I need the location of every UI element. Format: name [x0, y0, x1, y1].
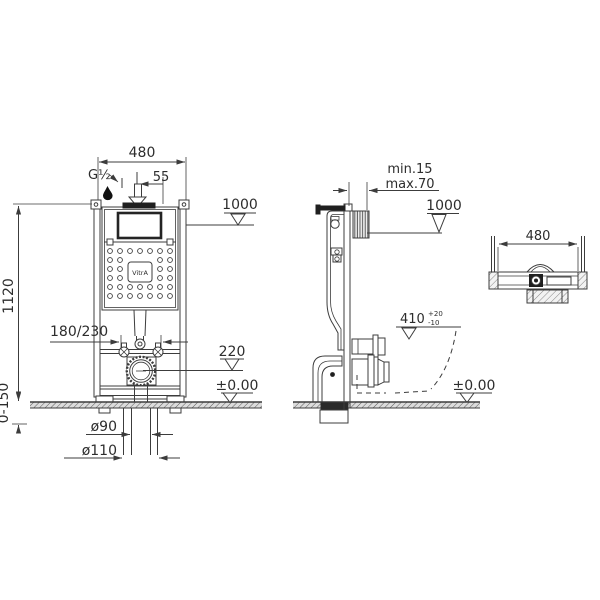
- level-floor-front: ±0.00: [216, 378, 259, 403]
- wall-distance-min-label: min.15: [387, 162, 432, 177]
- frame-height-label: 1120: [1, 278, 17, 314]
- level-triangle-icon: [231, 214, 245, 225]
- brand-label: VitrA: [132, 269, 148, 277]
- rim-tolerance-plus-label: +20: [428, 310, 443, 318]
- flush-level-label-side: 1000: [426, 198, 462, 214]
- front-view: 480 G½ 55: [0, 145, 262, 459]
- dim-bolt-spacing: 180/230: [50, 324, 188, 349]
- cistern-section: [527, 290, 568, 303]
- wall-section: [353, 211, 369, 238]
- corner-bracket-left: [91, 200, 101, 209]
- level-triangle-icon: [223, 393, 237, 403]
- flush-pipe: [134, 310, 146, 349]
- level-flush-plate-front: 1000: [186, 197, 258, 225]
- floor-level-label-front: ±0.00: [216, 378, 259, 394]
- top-view: 480: [489, 229, 587, 303]
- floor-front: [30, 402, 262, 408]
- level-triangle-icon: [402, 328, 416, 339]
- dim-sleeve-diameter: ø110: [64, 443, 180, 459]
- side-view: min.15 max.70 1000: [293, 162, 495, 423]
- installation-drawing: 480 G½ 55: [0, 0, 600, 600]
- outlet-height-label: 220: [219, 344, 246, 360]
- access-window: [547, 277, 571, 285]
- flush-level-label-front: 1000: [222, 197, 258, 213]
- level-triangle-icon: [432, 215, 446, 233]
- inlet-thread-label: G½: [88, 168, 111, 183]
- side-rail: [344, 204, 350, 402]
- cistern-tank: VitrA: [102, 203, 178, 310]
- front-width-label: 480: [129, 145, 156, 161]
- cistern-profile: [327, 211, 344, 350]
- floor-level-label-side: ±0.00: [453, 378, 496, 394]
- outlet-connector: [352, 355, 389, 387]
- plan-body: [489, 265, 587, 290]
- outlet-diameter-label: ø90: [91, 419, 117, 435]
- dim-outlet-diameter: ø90: [86, 419, 173, 435]
- dim-foot-adjustment: 0-150: [0, 383, 27, 432]
- side-foot: [320, 402, 350, 423]
- dim-frame-height: 1120: [1, 204, 92, 400]
- inlet-connection: [123, 203, 155, 208]
- rim-level-label: 410: [400, 312, 425, 327]
- flush-bend-arc: [527, 265, 554, 273]
- sleeve-diameter-label: ø110: [82, 443, 117, 459]
- dim-wall-distance: min.15 max.70: [333, 162, 439, 210]
- top-width-label: 480: [526, 229, 551, 244]
- technical-drawing-page: 480 G½ 55: [0, 0, 600, 600]
- level-triangle-icon: [460, 393, 474, 403]
- rim-tolerance-minus-label: -10: [428, 319, 439, 327]
- bolt-spacing-label: 180/230: [50, 324, 108, 340]
- flush-plate-opening: [118, 213, 161, 238]
- level-triangle-icon: [225, 359, 239, 370]
- rail-section-right: [578, 272, 587, 289]
- outlet-elbow: [313, 356, 342, 402]
- level-flush-plate-side: 1000: [367, 198, 462, 233]
- rail-section-left: [489, 272, 498, 289]
- water-drop-icon: [103, 186, 113, 200]
- corner-bracket-right: [179, 200, 189, 209]
- level-floor-side: ±0.00: [453, 378, 496, 403]
- inlet-offset-label: 55: [153, 170, 170, 185]
- level-rim-height: 410 +20 -10: [396, 310, 461, 339]
- wall-distance-max-label: max.70: [386, 177, 435, 192]
- foot-adjustment-label: 0-150: [0, 383, 12, 424]
